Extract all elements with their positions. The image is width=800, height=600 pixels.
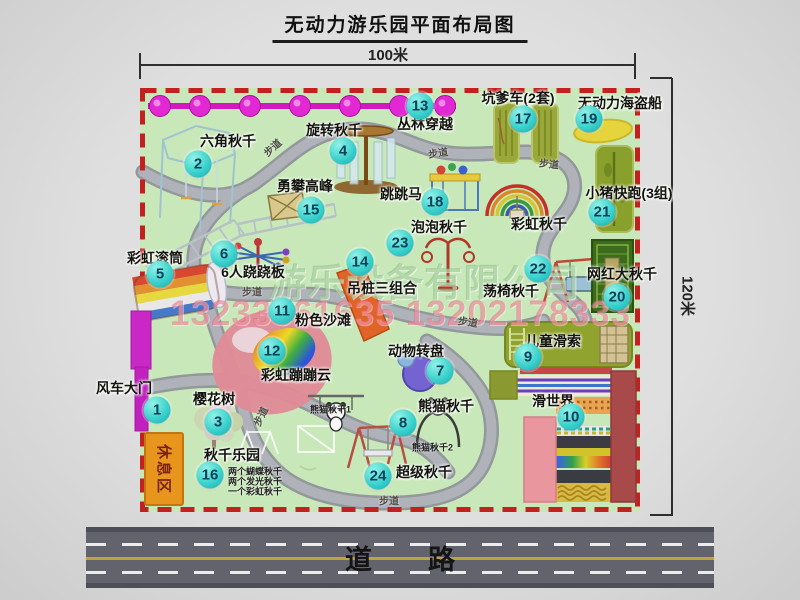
attraction-label-22: 荡椅秋千 — [483, 281, 539, 301]
attraction-label-11: 粉色沙滩 — [295, 310, 351, 330]
attraction-badge-5: 5 — [147, 261, 174, 288]
rainbow-swing-label: 彩虹秋千 — [511, 214, 567, 234]
walkway-label: 步道 — [242, 284, 262, 299]
attraction-badge-19: 19 — [576, 106, 603, 133]
attraction-label-24: 超级秋千 — [396, 462, 452, 482]
attraction-badge-11: 11 — [269, 298, 296, 325]
attraction-label-8: 熊猫秋千 — [418, 396, 474, 416]
attraction-badge-23: 23 — [387, 230, 414, 257]
road: 道路 — [86, 527, 714, 588]
attraction-badge-24: 24 — [365, 463, 392, 490]
walkway-label: 步道 — [538, 154, 559, 171]
attraction-note: 熊猫秋千2 — [412, 441, 453, 454]
attraction-label-15: 勇攀高峰 — [277, 176, 333, 196]
attraction-badge-15: 15 — [298, 197, 325, 224]
attraction-badge-22: 22 — [525, 256, 552, 283]
attraction-badge-16: 16 — [197, 462, 224, 489]
attraction-label-14: 吊桩三组合 — [347, 278, 417, 298]
rest-area: 休息区 — [144, 432, 184, 506]
attraction-badge-2: 2 — [185, 151, 212, 178]
attraction-label-3: 樱花树 — [193, 389, 235, 409]
attraction-badge-21: 21 — [589, 199, 616, 226]
attraction-label-4: 旋转秋千 — [306, 120, 362, 140]
attraction-label-20: 网红大秋千 — [587, 264, 657, 284]
attraction-badge-18: 18 — [422, 189, 449, 216]
attraction-note: 一个彩虹秋千 — [228, 485, 282, 498]
attraction-badge-7: 7 — [427, 358, 454, 385]
attraction-label-23: 泡泡秋千 — [411, 217, 467, 237]
watermark-phone: 13233861635 13202178333 — [170, 294, 631, 334]
walkway-label: 步道 — [379, 493, 399, 508]
road-label: 道路 — [86, 532, 714, 583]
attraction-badge-12: 12 — [259, 338, 286, 365]
attraction-badge-10: 10 — [558, 404, 585, 431]
attraction-badge-13: 13 — [407, 93, 434, 120]
attraction-label-18: 跳跳马 — [380, 184, 422, 204]
attraction-label-17: 坑爹车(2套) — [481, 88, 554, 108]
attraction-badge-3: 3 — [205, 409, 232, 436]
attraction-label-2: 六角秋千 — [200, 131, 256, 151]
slide-world-icon — [490, 367, 636, 502]
rest-area-label: 休息区 — [154, 443, 175, 494]
attraction-badge-20: 20 — [604, 284, 631, 311]
attraction-badge-9: 9 — [515, 344, 542, 371]
walkway-label: 步道 — [427, 143, 449, 161]
park-plan-image: 无动力游乐园平面布局图 100米 120米 — [0, 0, 800, 600]
attraction-badge-6: 6 — [211, 241, 238, 268]
attraction-badge-1: 1 — [144, 397, 171, 424]
walkway-label: 步道 — [457, 312, 479, 330]
attraction-label-1: 风车大门 — [96, 378, 152, 398]
attraction-label-12: 彩虹蹦蹦云 — [261, 365, 331, 385]
attraction-badge-17: 17 — [510, 106, 537, 133]
attraction-badge-4: 4 — [330, 138, 357, 165]
attraction-note: 熊猫秋千1 — [310, 403, 351, 416]
attraction-badge-8: 8 — [390, 410, 417, 437]
attraction-badge-14: 14 — [347, 249, 374, 276]
